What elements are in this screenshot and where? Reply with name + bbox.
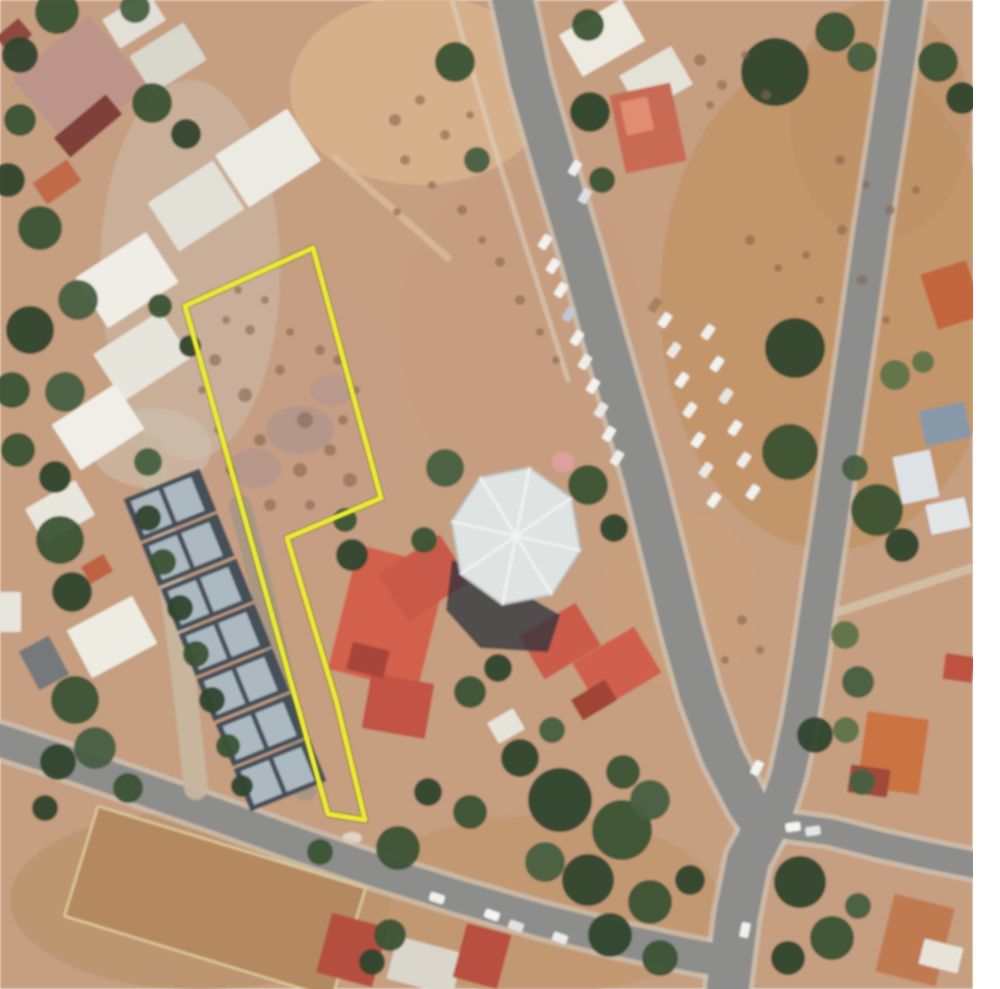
tree — [374, 919, 406, 951]
tree — [51, 676, 99, 724]
tree — [307, 839, 333, 865]
tree — [39, 461, 71, 493]
tree — [572, 9, 604, 41]
tree — [528, 768, 592, 832]
tree — [847, 42, 877, 72]
tree — [464, 147, 490, 173]
tree — [570, 92, 610, 132]
tree — [771, 941, 805, 975]
bush-speck — [756, 646, 764, 654]
bush-speck — [737, 615, 747, 625]
tree — [568, 465, 608, 505]
tree — [918, 42, 958, 82]
tree — [359, 949, 385, 975]
page — [0, 0, 1000, 989]
tree — [741, 38, 809, 106]
bush-speck — [515, 295, 525, 305]
tree — [842, 455, 868, 481]
bush-speck — [209, 354, 221, 366]
tree — [589, 167, 615, 193]
tree — [833, 717, 859, 743]
tree — [336, 539, 368, 571]
tree — [411, 527, 437, 553]
bush-speck — [343, 473, 357, 487]
bush-speck — [440, 130, 450, 140]
bush-speck — [536, 328, 544, 336]
tree — [171, 119, 201, 149]
bush-speck — [297, 412, 313, 428]
bush-speck — [415, 95, 425, 105]
tree — [562, 854, 614, 906]
bush-speck — [835, 155, 845, 165]
bush-speck — [293, 463, 307, 477]
tree — [1, 433, 35, 467]
bush-speck — [275, 365, 285, 375]
bush-speck — [400, 155, 410, 165]
tree — [797, 717, 833, 753]
bush-speck — [245, 325, 255, 335]
bush-speck — [745, 235, 755, 245]
bush-speck — [305, 500, 315, 510]
tree — [885, 528, 919, 562]
tree — [851, 484, 903, 536]
bush-speck — [816, 296, 824, 304]
tree — [183, 641, 209, 667]
tree — [845, 893, 871, 919]
bush-speck — [912, 186, 920, 194]
bush-speck — [774, 264, 782, 272]
tree — [2, 37, 38, 73]
building-roof — [362, 673, 435, 739]
bush-speck — [741, 51, 749, 59]
map-layers — [0, 0, 1000, 989]
tree — [6, 306, 54, 354]
tree — [376, 826, 420, 870]
bush-speck — [706, 101, 714, 109]
bush-speck — [495, 257, 505, 267]
tree — [600, 514, 628, 542]
tree — [774, 856, 826, 908]
bush-speck — [315, 345, 325, 355]
tree — [414, 778, 442, 806]
building-roof — [0, 592, 21, 632]
bush-speck — [261, 296, 269, 304]
bush-speck — [721, 656, 729, 664]
bush-speck — [717, 80, 727, 90]
tree — [58, 280, 98, 320]
satellite-image — [0, 0, 1000, 989]
tree — [628, 880, 672, 924]
tree — [630, 780, 670, 820]
tree — [912, 351, 934, 373]
tree — [588, 913, 632, 957]
bush-speck — [222, 316, 230, 324]
bush-speck — [694, 54, 706, 66]
bush-speck — [478, 236, 486, 244]
bush-speck — [254, 434, 266, 446]
tree — [501, 739, 539, 777]
bush-speck — [286, 328, 294, 336]
tree — [484, 654, 512, 682]
tree — [435, 42, 475, 82]
bush-speck — [238, 388, 252, 402]
tree — [148, 294, 172, 318]
tree — [4, 104, 36, 136]
bush-speck — [857, 275, 867, 285]
satellite-photo-svg — [0, 0, 1000, 989]
bush-speck — [264, 499, 276, 511]
tree — [642, 940, 678, 976]
building-roof — [942, 653, 975, 683]
tree — [113, 773, 143, 803]
tree — [815, 12, 855, 52]
tree — [36, 516, 84, 564]
tree — [849, 769, 875, 795]
tent-peak — [512, 532, 520, 540]
tree — [426, 449, 464, 487]
tree — [134, 448, 162, 476]
bush-speck — [338, 415, 348, 425]
tree — [132, 83, 172, 123]
tree — [74, 727, 116, 769]
tree — [40, 744, 76, 780]
tree — [216, 734, 240, 758]
tree — [453, 795, 487, 829]
tree — [18, 206, 62, 250]
bush-speck — [324, 444, 336, 456]
bush-speck — [862, 181, 870, 189]
bush-speck — [457, 205, 467, 215]
bush-speck — [389, 114, 401, 126]
bush-speck — [428, 181, 436, 189]
tree — [199, 687, 225, 713]
bush-speck — [882, 316, 890, 324]
ground-patch — [266, 406, 334, 454]
bush-speck — [885, 205, 895, 215]
tree — [135, 505, 161, 531]
tree — [810, 916, 854, 960]
tree — [606, 755, 640, 789]
tree — [167, 595, 193, 621]
tree — [32, 795, 58, 821]
tree — [525, 842, 565, 882]
tree — [762, 424, 818, 480]
tree — [52, 572, 92, 612]
bush-speck — [552, 356, 560, 364]
bush-speck — [393, 208, 401, 216]
bush-speck — [837, 225, 847, 235]
ground-patch — [552, 452, 574, 472]
tree — [765, 318, 825, 378]
page-margin — [973, 0, 1000, 989]
tree — [675, 865, 705, 895]
bush-speck — [466, 111, 474, 119]
tree — [454, 676, 486, 708]
tree — [831, 621, 859, 649]
tree — [231, 775, 253, 797]
tree — [539, 717, 565, 743]
bush-speck — [802, 251, 810, 259]
tree — [880, 360, 910, 390]
bush-speck — [761, 90, 771, 100]
tree — [45, 372, 85, 412]
tree — [150, 549, 176, 575]
tree — [842, 666, 874, 698]
